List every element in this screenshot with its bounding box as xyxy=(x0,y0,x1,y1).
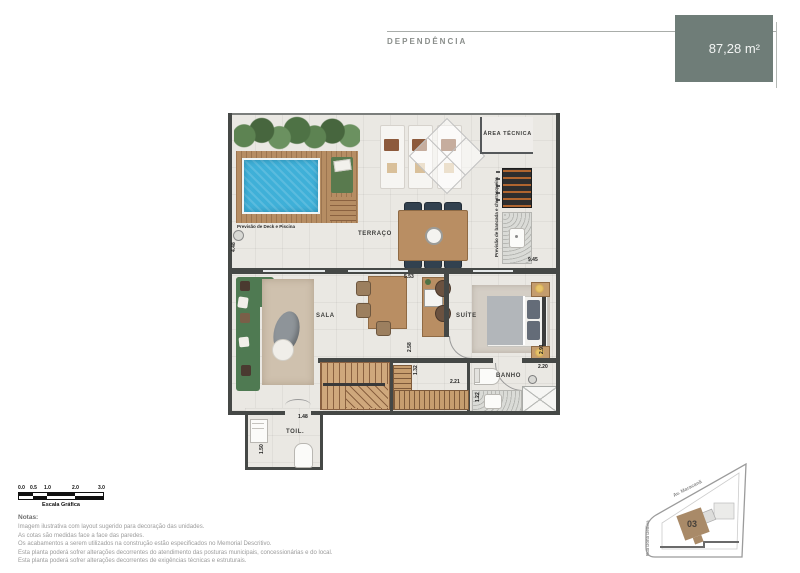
lamp-icon xyxy=(535,284,544,293)
scale-caption: Escala Gráfica xyxy=(18,502,104,508)
sofa-pillow xyxy=(237,296,248,308)
toil-door-arc xyxy=(285,399,311,412)
area-badge: 87,28 m² xyxy=(675,15,773,82)
sofa-pillow xyxy=(241,365,251,376)
bottom-wall xyxy=(311,411,560,415)
sala-label: SALA xyxy=(316,313,335,319)
suite-window-glass xyxy=(473,270,513,272)
sliding-door-glass xyxy=(263,270,325,272)
terraco-label: TERRAÇO xyxy=(358,231,392,237)
sala-chair xyxy=(356,303,371,318)
dim-banho-width: 1.22 xyxy=(475,386,481,402)
toil-toilet xyxy=(294,443,313,468)
suite-label: SUÍTE xyxy=(456,313,477,319)
toil-wall-right xyxy=(320,411,323,470)
suite-wall xyxy=(444,268,449,337)
floor-plan: Previsão de Deck e Piscina ÁREA TÉCNICA … xyxy=(228,113,560,470)
floorplan-page: DEPENDÊNCIA 87,28 m² Previsão de Deck e … xyxy=(0,0,800,573)
pool xyxy=(242,158,320,214)
sofa-pillow xyxy=(239,337,250,348)
bed-pillow xyxy=(527,300,540,319)
dim-sala-door: 5.53 xyxy=(404,274,414,280)
toil-label: TOIL. xyxy=(286,429,304,435)
area-tecnica-room: ÁREA TÉCNICA xyxy=(480,117,533,154)
barbecue-grill xyxy=(502,168,532,208)
bed-blanket xyxy=(487,296,525,345)
deck-caption: Previsão de Deck e Piscina xyxy=(237,224,295,229)
dim-left: 4.48 xyxy=(231,236,237,252)
right-wall xyxy=(556,113,560,415)
scale-tick: 3.0 xyxy=(98,485,105,491)
scale-tick: 0.5 xyxy=(30,485,37,491)
counter-sink xyxy=(509,228,525,248)
ottoman xyxy=(272,339,294,361)
notes-line: Esta planta poderá sofrer alterações dec… xyxy=(18,557,438,566)
sala-chair xyxy=(376,321,391,336)
dim-right-top: 9.45 xyxy=(528,257,538,263)
dim-toil-width: 1.48 xyxy=(298,414,308,420)
dim-closet-width: 2.21 xyxy=(450,379,460,385)
sala-chair xyxy=(356,281,371,296)
deck-steps xyxy=(330,197,356,221)
showerhead-icon xyxy=(528,375,537,384)
notes-line: As cotas são medidas face a face das par… xyxy=(18,532,438,541)
staircase-winder xyxy=(346,384,388,408)
dim-hall: 2.58 xyxy=(407,336,413,352)
dim-toil-depth: 1.50 xyxy=(259,438,265,454)
sofa-pillow xyxy=(240,313,250,323)
parapet-wall xyxy=(228,113,560,115)
dim-banho-side: 2.20 xyxy=(538,364,548,370)
sun-lounger xyxy=(380,125,405,189)
street-label-left: Rua Dona Delfina xyxy=(645,520,650,556)
dim-suite-side: 2.91 xyxy=(539,338,545,354)
site-core xyxy=(714,503,734,519)
sink-faucet-dot xyxy=(515,235,518,238)
notes-line: Imagem ilustrativa com layout sugerido p… xyxy=(18,523,438,532)
banho-wall xyxy=(522,358,556,363)
desk-plant xyxy=(425,279,431,285)
scale-tick: 2.0 xyxy=(72,485,79,491)
dim-closet-depth: 1.32 xyxy=(413,359,419,375)
notes-line: Esta planta poderá sofrer alterações dec… xyxy=(18,549,438,558)
banho-sink xyxy=(484,394,502,409)
stair-rail xyxy=(323,383,385,386)
closet xyxy=(393,390,469,410)
scale-tick: 0.0 xyxy=(18,485,25,491)
bottom-wall xyxy=(228,411,285,415)
scale-bar-graphic xyxy=(18,492,104,500)
site-plan: 03 Av. Maracanã Rua Dona Delfina xyxy=(642,461,794,571)
shower xyxy=(522,386,558,413)
site-unit-number: 03 xyxy=(687,519,697,529)
toil-wall-left xyxy=(245,411,248,470)
left-wall xyxy=(228,113,232,415)
sliding-door-glass xyxy=(348,270,408,272)
plants xyxy=(234,116,360,152)
scale-tick: 1.0 xyxy=(44,485,51,491)
header-corner-rule xyxy=(776,22,777,88)
notes-title: Notas: xyxy=(18,514,438,521)
banho-label: BANHO xyxy=(496,373,521,379)
toil-sink-line xyxy=(252,428,264,429)
area-tecnica-label: ÁREA TÉCNICA xyxy=(483,131,532,138)
scale-ticks: 0.0 0.5 1.0 2.0 3.0 xyxy=(18,485,104,492)
toilet-tank xyxy=(474,368,480,383)
bancada-caption: Previsão de bancada e churrasqueira xyxy=(494,177,499,257)
scale-bar: 0.0 0.5 1.0 2.0 3.0 Escala Gráfica xyxy=(18,485,104,508)
sofa-pillow xyxy=(240,281,250,291)
toil-sink-line xyxy=(252,423,264,424)
notes-line: Os acabamentos a serem utilizados na con… xyxy=(18,540,438,549)
notes: Notas: Imagem ilustrativa com layout sug… xyxy=(18,514,438,566)
table-centerpiece xyxy=(425,227,443,245)
deck-pillow xyxy=(333,159,351,172)
page-title: DEPENDÊNCIA xyxy=(387,37,467,46)
